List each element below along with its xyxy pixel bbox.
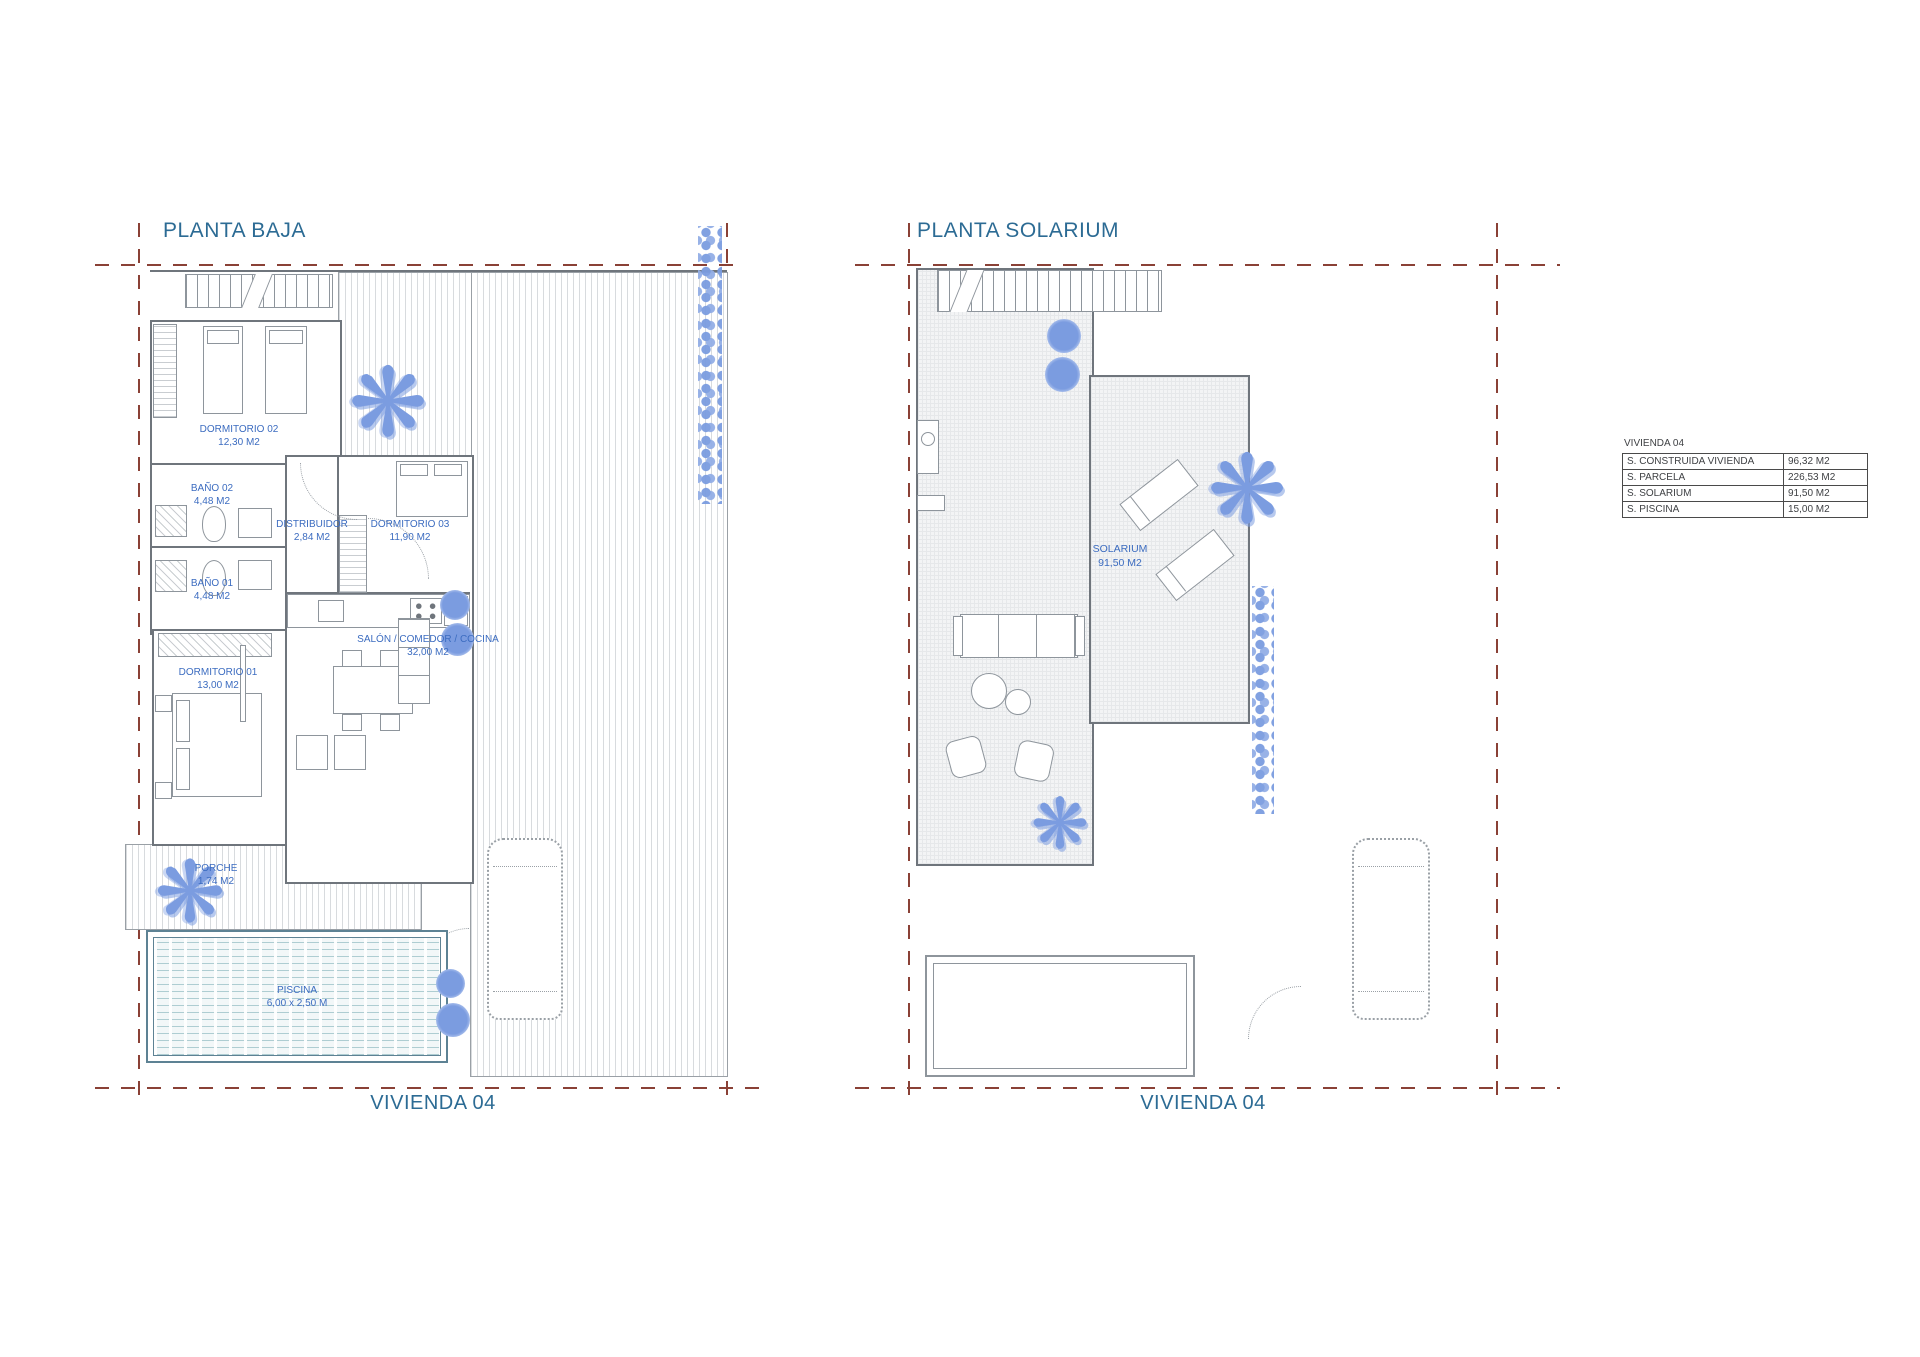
room-label-dormitorio-01: DORMITORIO 01 13,00 M2	[179, 666, 258, 692]
summary-table: S. CONSTRUIDA VIVIENDA 96,32 M2 S. PARCE…	[1622, 453, 1868, 518]
fern-plant-icon: ❋	[1031, 789, 1090, 859]
plot-boundary-line	[1496, 222, 1498, 1095]
kitchen-sink	[318, 600, 344, 622]
room-label-porche: PORCHE 1,74 M2	[195, 862, 238, 888]
partition-wall	[150, 546, 285, 548]
row-value: 91,50 M2	[1784, 486, 1867, 501]
row-value: 15,00 M2	[1784, 502, 1867, 517]
plot-boundary-line	[138, 222, 140, 1095]
hedge-icon	[1252, 586, 1274, 814]
plot-boundary-line	[855, 264, 1560, 266]
wardrobe	[158, 633, 272, 657]
round-coffee-table	[1005, 689, 1031, 715]
sofa-armrest	[953, 616, 963, 656]
stair-break-line	[241, 274, 273, 308]
table-row: S. SOLARIUM 91,50 M2	[1623, 485, 1867, 501]
bush-icon	[1047, 319, 1081, 353]
chair	[380, 714, 400, 731]
plot-boundary-line	[908, 222, 910, 1095]
hedge-icon	[698, 226, 722, 504]
row-label: S. PARCELA	[1623, 470, 1784, 485]
row-label: S. PISCINA	[1623, 502, 1784, 517]
car-parking-outline	[1352, 838, 1430, 1020]
outdoor-sofa	[960, 614, 1078, 658]
outdoor-kitchenette	[917, 420, 939, 474]
plan-baja-title: PLANTA BAJA	[163, 219, 306, 243]
car-parking-outline	[487, 838, 563, 1020]
sofa	[398, 618, 430, 704]
pillow	[176, 700, 190, 742]
pillow	[269, 330, 303, 344]
floorplan-sheet: PLANTA BAJA	[0, 0, 1920, 1357]
pool-outline	[925, 955, 1195, 1077]
room-label-piscina: PISCINA 6,00 x 2,50 M	[267, 984, 328, 1010]
washbasin	[238, 560, 272, 590]
bush-icon	[1045, 357, 1080, 392]
summary-title: VIVIENDA 04	[1624, 438, 1868, 449]
area-summary: VIVIENDA 04 S. CONSTRUIDA VIVIENDA 96,32…	[1622, 438, 1868, 518]
room-label-distribuidor: DISTRIBUIDOR 2,84 M2	[276, 518, 348, 544]
room-label-bano-01: BAÑO 01 4,48 M2	[191, 577, 233, 603]
pool-inner-outline	[933, 963, 1187, 1069]
table-row: S. PISCINA 15,00 M2	[1623, 501, 1867, 517]
nightstand	[155, 695, 172, 712]
table-row: S. PARCELA 226,53 M2	[1623, 469, 1867, 485]
round-coffee-table	[971, 673, 1007, 709]
row-value: 96,32 M2	[1784, 454, 1867, 469]
plan-baja-footer: VIVIENDA 04	[370, 1092, 496, 1115]
staircase	[937, 270, 1162, 312]
plot-boundary-line	[95, 1087, 760, 1089]
plan-solarium-title: PLANTA SOLARIUM	[917, 219, 1119, 243]
armchair	[296, 735, 328, 770]
bush-icon	[440, 590, 470, 620]
vent-box	[917, 495, 945, 511]
staircase	[185, 274, 333, 308]
plot-boundary-line	[95, 264, 742, 266]
row-value: 226,53 M2	[1784, 470, 1867, 485]
room-label-bano-02: BAÑO 02 4,48 M2	[191, 482, 233, 508]
plot-boundary-line	[855, 1087, 1560, 1089]
bush-icon	[436, 969, 465, 998]
washbasin	[238, 508, 272, 538]
palm-tree-icon: ❋	[1207, 444, 1287, 539]
palm-tree-icon: ❋	[348, 357, 428, 452]
bush-icon	[436, 1003, 470, 1037]
toilet	[202, 506, 226, 542]
shower	[155, 560, 187, 592]
wardrobe	[153, 324, 177, 418]
nightstand	[155, 782, 172, 799]
exterior-wall	[150, 270, 727, 272]
pillow	[207, 330, 239, 344]
sofa-armrest	[1075, 616, 1085, 656]
row-label: S. CONSTRUIDA VIVIENDA	[1623, 454, 1784, 469]
room-label-salon: SALÓN / COMEDOR / COCINA 32,00 M2	[357, 633, 499, 659]
room-label-dormitorio-03: DORMITORIO 03 11,90 M2	[371, 518, 450, 544]
plan-solarium-footer: VIVIENDA 04	[1140, 1092, 1266, 1115]
pillow	[434, 464, 462, 476]
room-label-solarium: SOLARIUM 91,50 M2	[1093, 543, 1148, 570]
door-swing-arc	[1248, 986, 1301, 1039]
room-label-dormitorio-02: DORMITORIO 02 12,30 M2	[200, 423, 279, 449]
chair	[342, 714, 362, 731]
armchair	[334, 735, 366, 770]
pillow	[400, 464, 428, 476]
row-label: S. SOLARIUM	[1623, 486, 1784, 501]
table-row: S. CONSTRUIDA VIVIENDA 96,32 M2	[1623, 454, 1867, 469]
kitchenette-sink	[921, 432, 935, 446]
shower	[155, 505, 187, 537]
pillow	[176, 748, 190, 790]
stair-break-line	[950, 270, 985, 312]
